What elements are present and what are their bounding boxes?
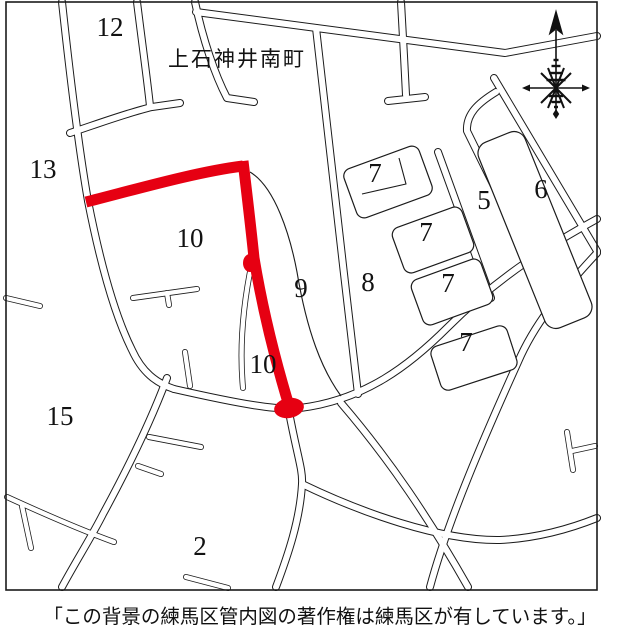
block-label: 9 <box>294 273 308 303</box>
area-name-label: 上石神井南町 <box>168 47 306 71</box>
route-junction-blob <box>243 254 257 272</box>
block-label: 6 <box>534 174 548 204</box>
block-label: 12 <box>97 12 124 42</box>
block-label: 15 <box>47 401 74 431</box>
block-label: 7 <box>459 327 473 357</box>
block-label: 10 <box>177 223 204 253</box>
block-label: 2 <box>193 531 207 561</box>
map-window: 上石神井南町 12 13 10 9 10 8 7 7 7 7 5 6 15 2 … <box>0 0 640 633</box>
district-map-canvas: 上石神井南町 12 13 10 9 10 8 7 7 7 7 5 6 15 2 <box>0 0 640 596</box>
block-label: 8 <box>361 267 375 297</box>
block-label: 7 <box>441 268 455 298</box>
block-label: 13 <box>30 154 57 184</box>
block-label: 10 <box>250 349 277 379</box>
copyright-caption: 「この背景の練馬区管内図の著作権は練馬区が有しています。」 <box>0 596 640 633</box>
block-label: 7 <box>368 158 382 188</box>
block-label: 5 <box>477 185 491 215</box>
block-label: 7 <box>419 217 433 247</box>
